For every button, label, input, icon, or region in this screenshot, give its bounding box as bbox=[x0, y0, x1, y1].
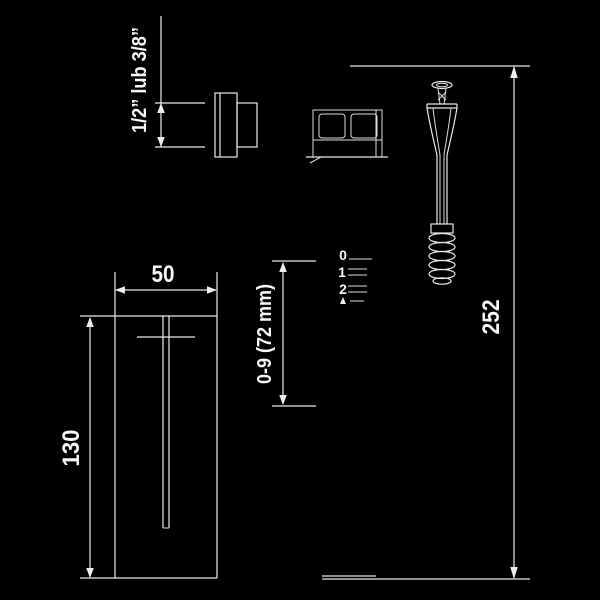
connector-side-view bbox=[215, 93, 257, 157]
inlet-thread-label: 1/2” lub 3/8” bbox=[129, 27, 151, 133]
total-height-label: 252 bbox=[478, 300, 505, 335]
standpipe-side-view bbox=[427, 82, 457, 285]
outlet-pipe bbox=[137, 316, 195, 528]
dim-adjust-range: 0-9 (72 mm) bbox=[254, 261, 316, 406]
scale-ruler: 0 1 2 bbox=[338, 247, 372, 304]
dim-width: 50 bbox=[115, 261, 217, 294]
technical-drawing: 1/2” lub 3/8” 50 bbox=[0, 0, 600, 600]
scale-mark-1: 1 bbox=[338, 264, 346, 280]
adjust-range-label: 0-9 (72 mm) bbox=[254, 284, 276, 384]
dim-height: 130 bbox=[58, 317, 94, 578]
width-label: 50 bbox=[152, 261, 175, 288]
dim-inlet-thread: 1/2” lub 3/8” bbox=[129, 16, 205, 147]
front-view-box bbox=[80, 272, 217, 578]
dim-total-height: 252 bbox=[478, 66, 518, 579]
scale-mark-0: 0 bbox=[339, 247, 347, 263]
wall-bracket bbox=[306, 110, 388, 163]
floor-line bbox=[322, 576, 530, 579]
scale-mark-2: 2 bbox=[339, 281, 347, 297]
technical-drawing-canvas: 1/2” lub 3/8” 50 bbox=[0, 0, 600, 600]
height-label: 130 bbox=[58, 430, 85, 467]
